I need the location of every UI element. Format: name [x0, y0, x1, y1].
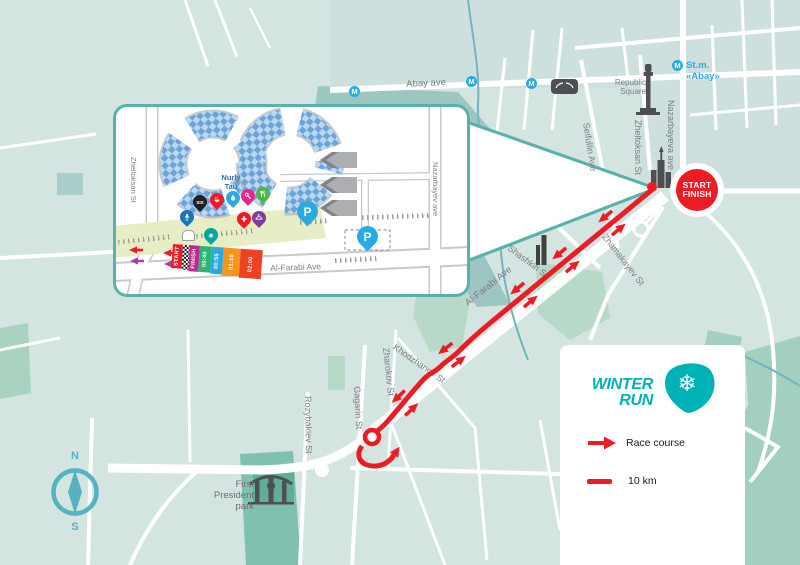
- finish-label: FINISH: [682, 190, 711, 200]
- parking-icon: P: [292, 196, 322, 226]
- start-corrals: START FINISH 00:40 00:55 01:10 02:00: [171, 244, 263, 279]
- turnaround-point: [365, 430, 379, 444]
- food-point-icon: [207, 190, 227, 210]
- inset-zheltoksan-st-label: Zheltoksan St: [129, 157, 138, 203]
- sis-point-icon: SIS: [190, 192, 210, 212]
- snowflake-icon: ❄: [672, 371, 702, 397]
- bell-icon: [201, 225, 221, 245]
- nurly-tau-label: Nurly Tau: [216, 174, 246, 191]
- meal-icon: [253, 184, 273, 204]
- distance-label: 10 km: [628, 475, 657, 487]
- start-area-inset: START FINISH 00:40 00:55 01:10 02:00 SIS: [113, 104, 470, 297]
- compass-icon: [48, 465, 102, 519]
- inset-al-farabi-ave-label: Al-Farabi Ave: [270, 261, 321, 273]
- course-start-dot: [647, 182, 657, 192]
- announcer-icon: [177, 207, 197, 227]
- start-gate-icon: [182, 230, 195, 241]
- race-course-label: Race course: [626, 437, 685, 449]
- start-finish-badge: START FINISH: [670, 163, 724, 217]
- inset-nazarbayev-ave-label: Nazarbayev ave: [431, 162, 440, 216]
- corral-0110: 01:10: [222, 248, 241, 277]
- compass-south-label: S: [67, 521, 83, 533]
- turnaround-loop: [359, 446, 394, 466]
- compass-north-label: N: [67, 450, 83, 462]
- water-point-icon: [223, 188, 243, 208]
- race-course-arrow-icon: [586, 435, 618, 451]
- legend-panel: WINTER RUN ❄ Race course 10 km: [560, 345, 745, 565]
- race-map: Abay ave Republic Square St.m. «Abay» Na…: [0, 0, 800, 565]
- corral-0200: 02:00: [239, 249, 263, 279]
- parking-icon: P: [352, 221, 382, 251]
- winter-run-logo-text: RUN: [578, 392, 653, 410]
- wardrobe-icon: [249, 208, 269, 228]
- office-buildings: [320, 152, 357, 216]
- distance-line-icon: [587, 479, 612, 484]
